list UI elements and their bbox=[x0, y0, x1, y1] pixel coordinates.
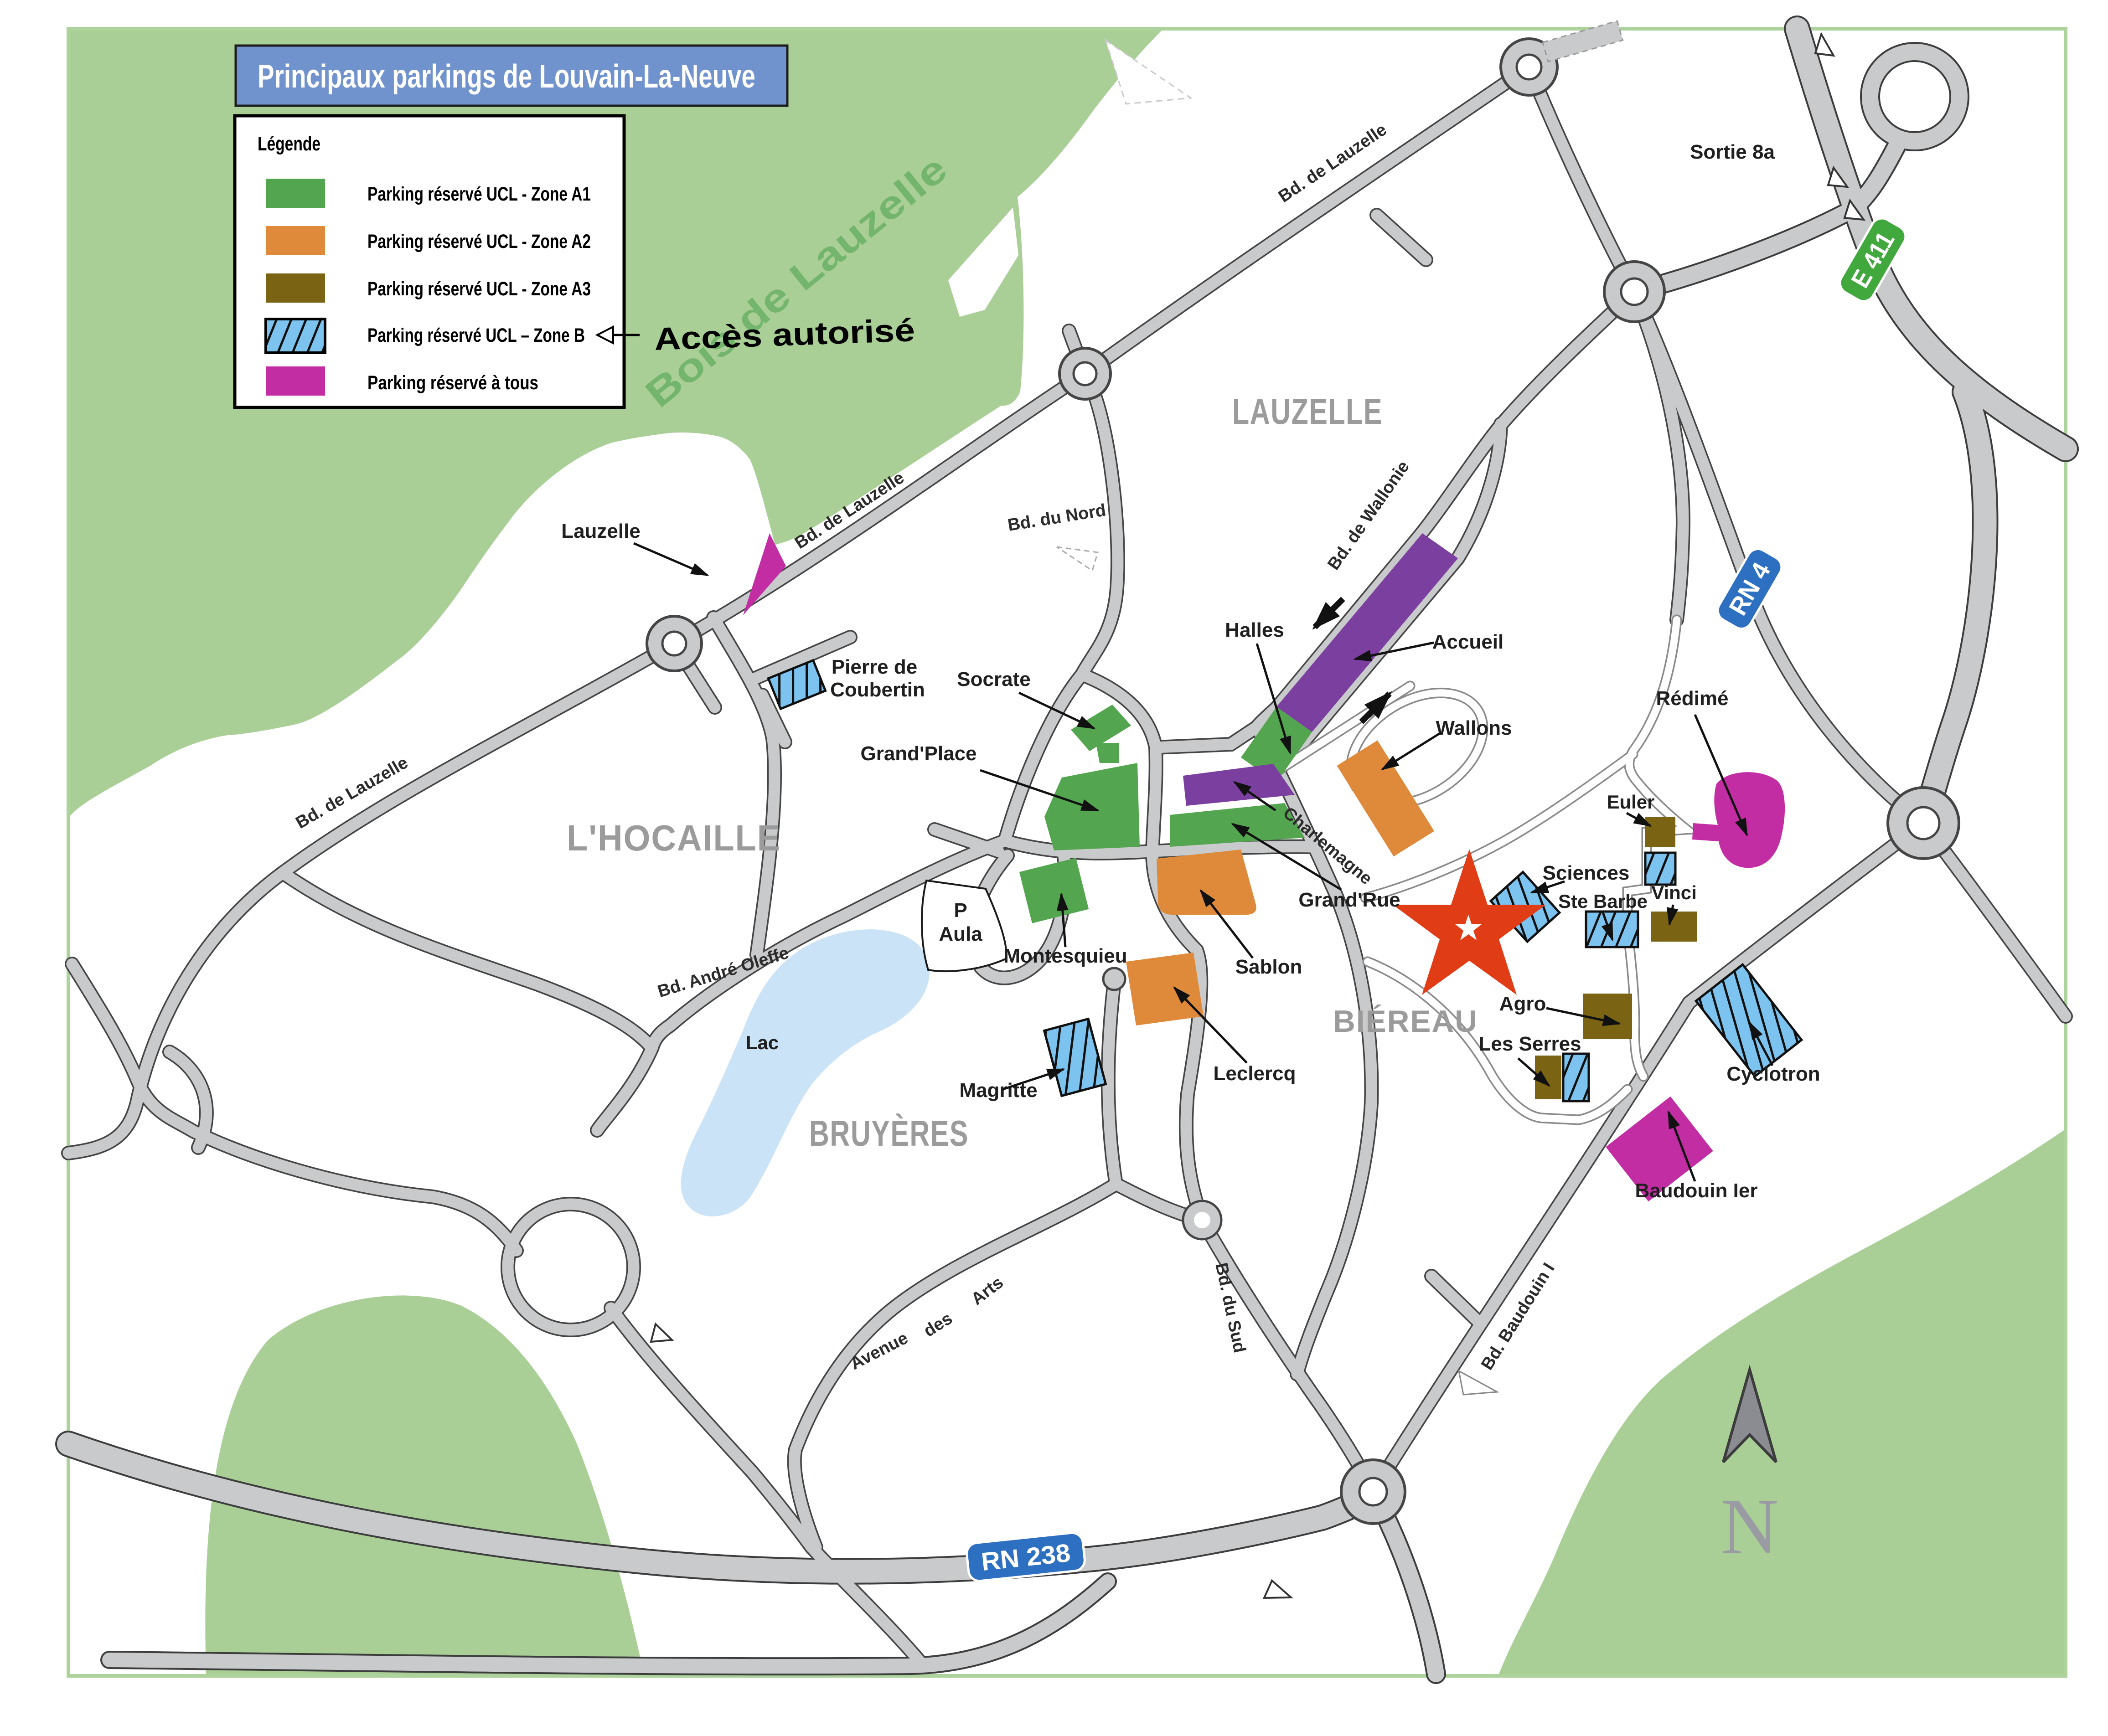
svg-text:LAUZELLE: LAUZELLE bbox=[1232, 391, 1383, 432]
svg-text:Leclercq: Leclercq bbox=[1214, 1062, 1296, 1085]
svg-text:Principaux parkings de Louvain: Principaux parkings de Louvain-La-Neuve bbox=[258, 58, 755, 95]
svg-text:BRUYÈRES: BRUYÈRES bbox=[809, 1113, 969, 1154]
svg-text:Cyclotron: Cyclotron bbox=[1726, 1063, 1820, 1085]
svg-text:Coubertin: Coubertin bbox=[830, 679, 925, 701]
svg-text:Parking réservé à tous: Parking réservé à tous bbox=[367, 372, 538, 394]
svg-text:Sciences: Sciences bbox=[1543, 862, 1630, 884]
svg-text:BIÉREAU: BIÉREAU bbox=[1333, 1004, 1478, 1039]
svg-text:Lauzelle: Lauzelle bbox=[561, 520, 641, 542]
svg-text:Lac: Lac bbox=[746, 1032, 779, 1053]
svg-text:Grand'Place: Grand'Place bbox=[860, 742, 976, 765]
svg-text:P: P bbox=[954, 899, 967, 922]
svg-text:Euler: Euler bbox=[1607, 791, 1654, 813]
svg-text:Sortie 8a: Sortie 8a bbox=[1690, 141, 1775, 163]
svg-text:Parking réservé UCL - Zone A1: Parking réservé UCL - Zone A1 bbox=[367, 183, 591, 205]
svg-text:L'HOCAILLE: L'HOCAILLE bbox=[567, 818, 781, 858]
svg-text:Les Serres: Les Serres bbox=[1478, 1033, 1581, 1055]
svg-text:Vinci: Vinci bbox=[1651, 882, 1697, 903]
svg-text:Baudouin Ier: Baudouin Ier bbox=[1635, 1180, 1758, 1202]
svg-text:Agro: Agro bbox=[1499, 993, 1546, 1015]
svg-text:Montesquieu: Montesquieu bbox=[1003, 945, 1127, 967]
svg-text:Parking réservé UCL - Zone A2: Parking réservé UCL - Zone A2 bbox=[367, 231, 591, 252]
svg-text:Parking réservé UCL - Zone A3: Parking réservé UCL - Zone A3 bbox=[367, 278, 591, 300]
svg-text:Pierre de: Pierre de bbox=[832, 656, 917, 678]
svg-text:Aula: Aula bbox=[939, 923, 982, 945]
svg-text:Ste Barbe: Ste Barbe bbox=[1558, 891, 1648, 912]
svg-text:Rédimé: Rédimé bbox=[1656, 687, 1729, 710]
svg-text:Halles: Halles bbox=[1225, 619, 1284, 641]
svg-text:Accueil: Accueil bbox=[1432, 631, 1504, 653]
svg-text:N: N bbox=[1721, 1482, 1778, 1571]
svg-text:Socrate: Socrate bbox=[957, 668, 1030, 690]
svg-text:Légende: Légende bbox=[258, 133, 320, 155]
svg-text:Parking réservé UCL – Zone B: Parking réservé UCL – Zone B bbox=[367, 325, 585, 346]
svg-text:Grand'Rue: Grand'Rue bbox=[1298, 889, 1400, 911]
svg-text:Wallons: Wallons bbox=[1436, 717, 1512, 739]
svg-text:Sablon: Sablon bbox=[1235, 956, 1302, 978]
